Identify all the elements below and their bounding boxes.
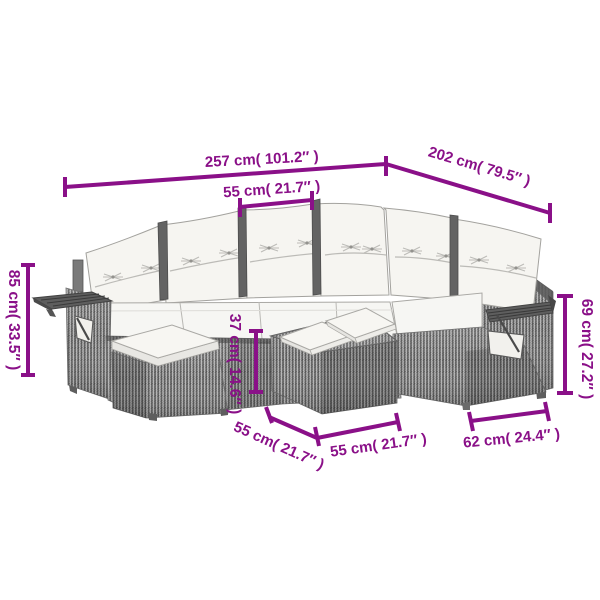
- svg-text:85 cm( 33.5″ ): 85 cm( 33.5″ ): [5, 270, 22, 370]
- svg-text:37 cm( 14.6″ ): 37 cm( 14.6″ ): [226, 314, 243, 414]
- svg-text:69 cm( 27.2″ ): 69 cm( 27.2″ ): [578, 299, 595, 399]
